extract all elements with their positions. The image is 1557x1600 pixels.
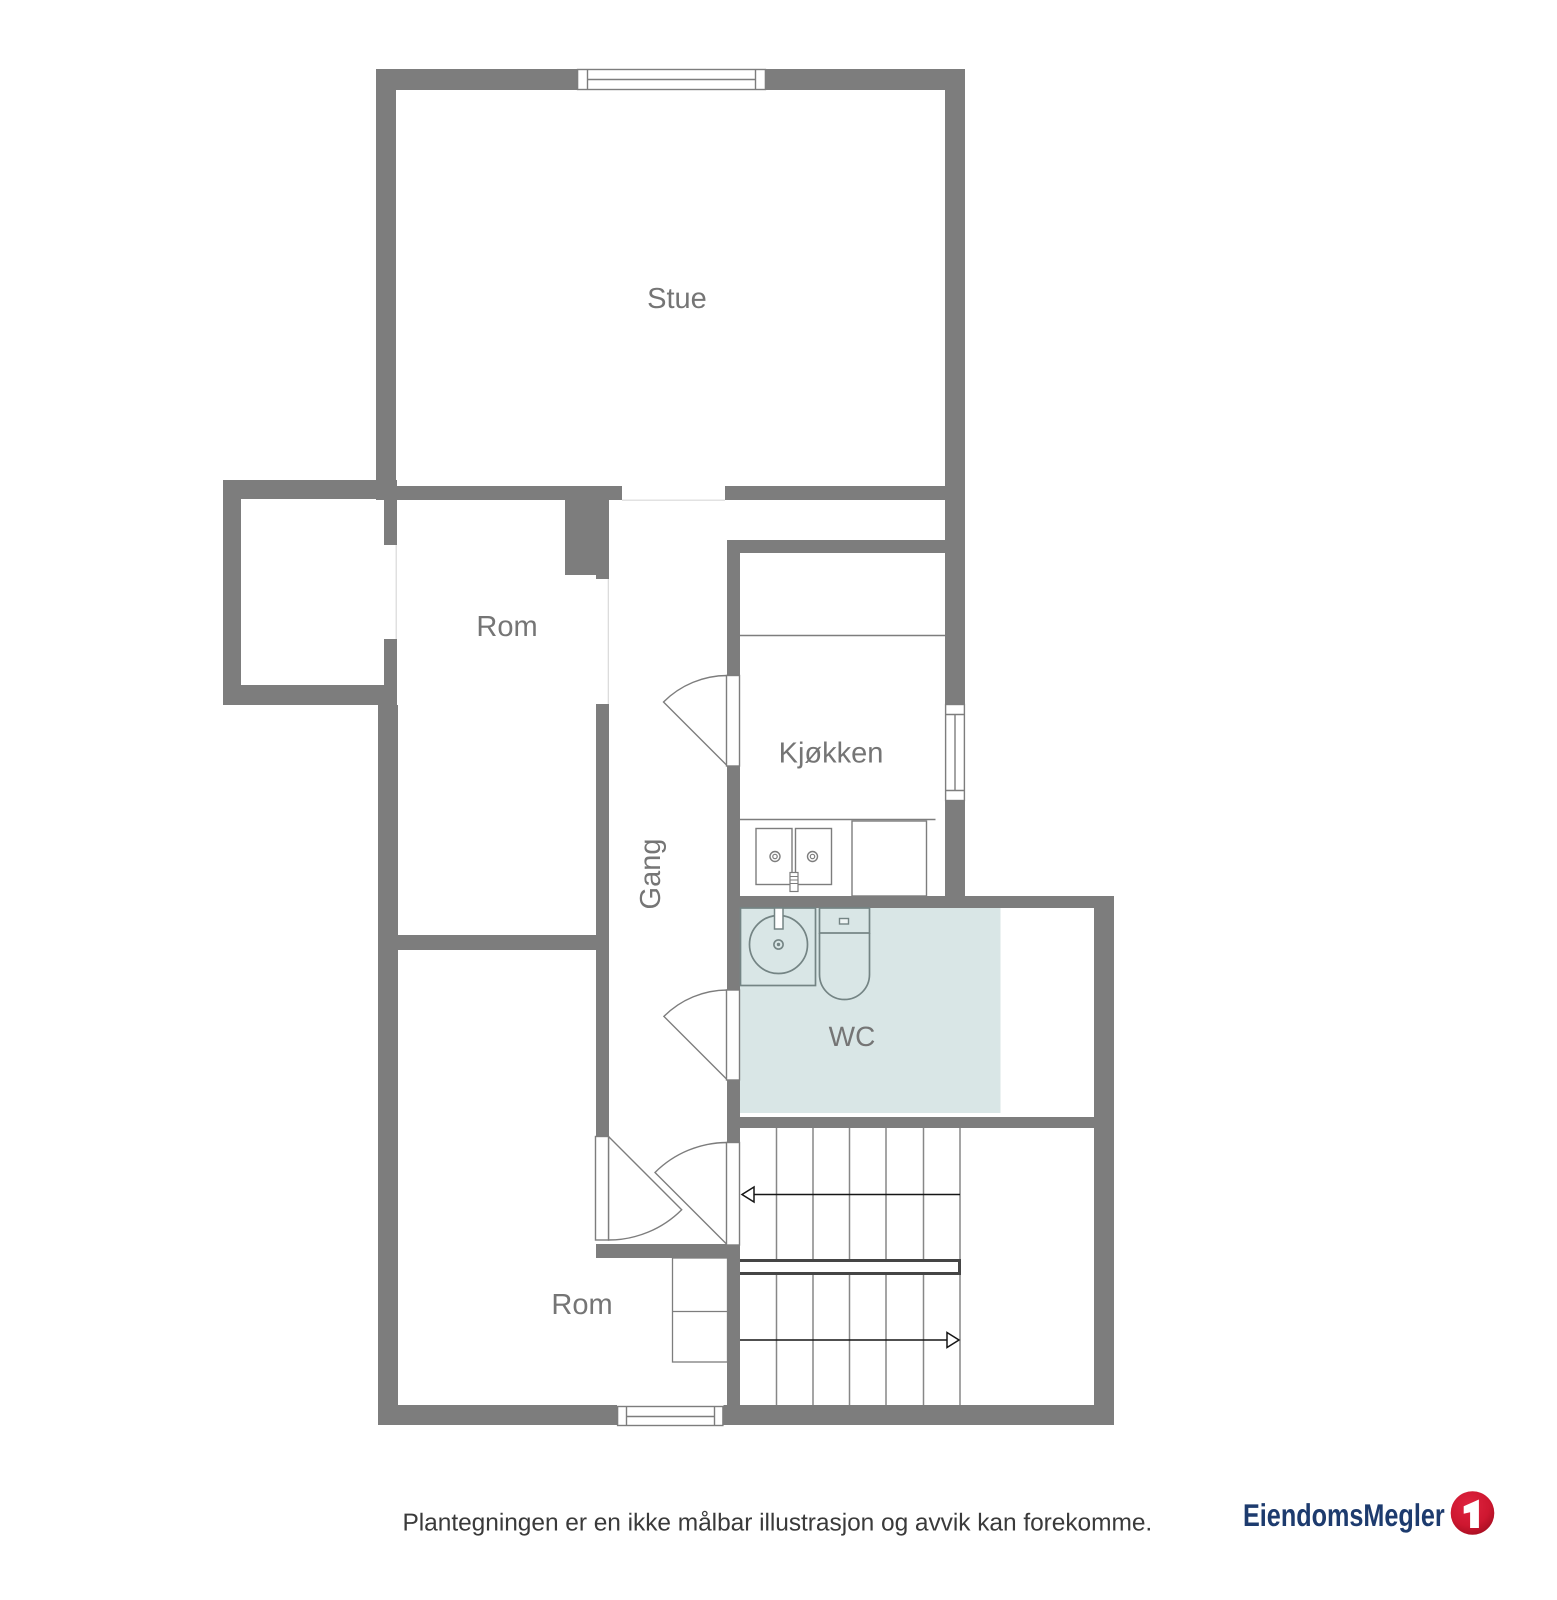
svg-text:WC: WC <box>829 1021 876 1052</box>
svg-text:Stue: Stue <box>647 283 707 315</box>
svg-text:Rom: Rom <box>551 1289 612 1321</box>
svg-text:Gang: Gang <box>635 839 667 910</box>
svg-text:Rom: Rom <box>476 611 537 643</box>
svg-text:EiendomsMegler: EiendomsMegler <box>1243 1497 1445 1533</box>
svg-text:Plantegningen er en ikke målba: Plantegningen er en ikke målbar illustra… <box>403 1510 1153 1537</box>
svg-text:Kjøkken: Kjøkken <box>779 738 884 770</box>
